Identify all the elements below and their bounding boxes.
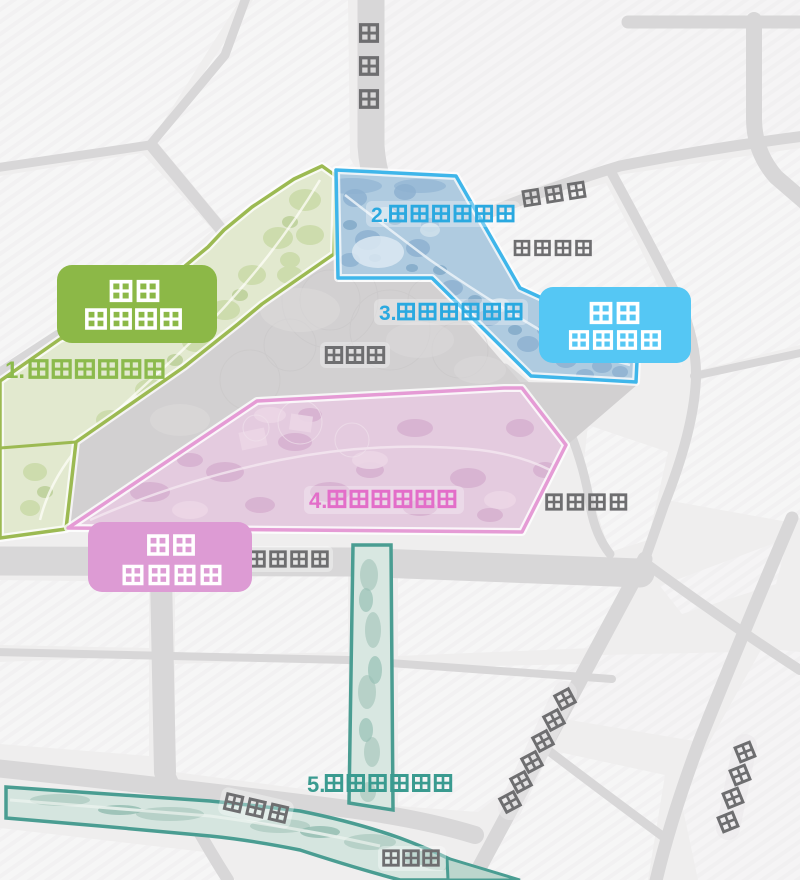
svg-text:2.: 2.: [371, 204, 389, 227]
svg-text:5.: 5.: [307, 772, 325, 797]
svg-text:3.: 3.: [379, 302, 397, 325]
svg-text:1.: 1.: [5, 357, 25, 384]
svg-text:4.: 4.: [309, 488, 327, 513]
